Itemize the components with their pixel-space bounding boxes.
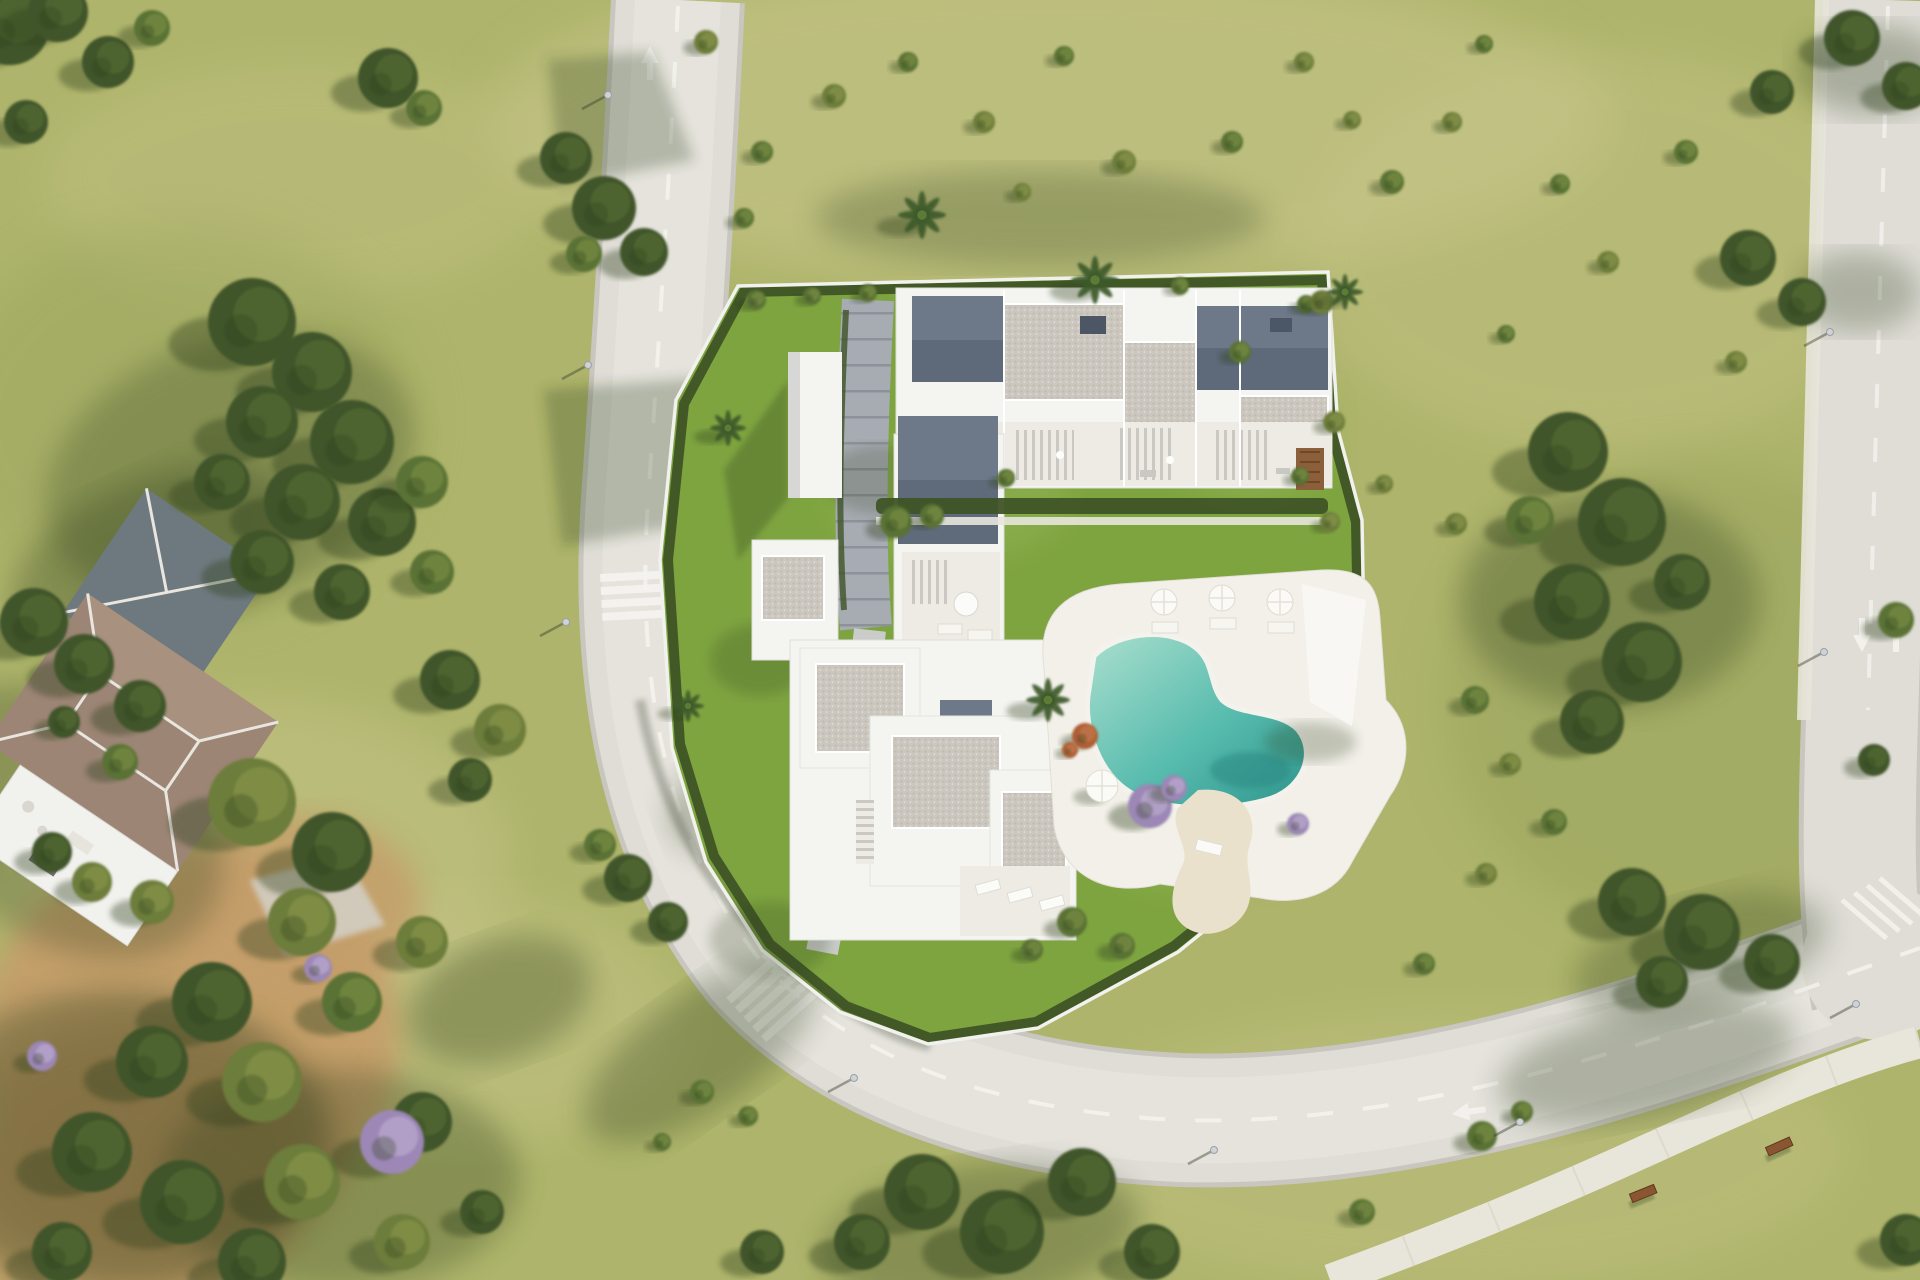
street-lamp [605, 92, 612, 99]
tree-inner-shade [1864, 757, 1876, 769]
tree-inner-shade [287, 365, 317, 395]
tree-inner-shade [39, 848, 54, 863]
tree-inner-shade [1384, 180, 1393, 189]
tree-inner-shade [1065, 749, 1071, 755]
tree-inner-shade [187, 995, 217, 1025]
tree-inner-shade [1546, 820, 1556, 830]
tree-inner-shade [1515, 516, 1533, 534]
skylight [1080, 316, 1106, 334]
tree-inner-shade [1466, 697, 1477, 708]
pool-deep-end [1210, 752, 1290, 788]
tree-inner-shade [1136, 802, 1153, 819]
tree-inner-shade [1758, 88, 1775, 105]
tree-inner-shade [844, 1237, 865, 1258]
tree-inner-shade [33, 1053, 44, 1064]
tree-inner-shade [1449, 522, 1457, 530]
tree-inner-shade [573, 251, 587, 265]
tree-inner-shade [1061, 1176, 1087, 1202]
tree-inner-shade [1298, 60, 1306, 68]
tree-inner-shade [1548, 595, 1577, 624]
tree-inner-shade [886, 519, 898, 531]
tree-inner-shade [1611, 896, 1637, 922]
tree-inner-shade [806, 294, 813, 301]
tree-inner-shade [39, 7, 62, 30]
tree-inner-shade [1446, 120, 1454, 128]
tree-inner-shade [750, 298, 758, 306]
tree-inner-shade [694, 1090, 703, 1099]
palm-crown [917, 210, 927, 220]
street-lamp [1827, 329, 1834, 336]
tree-inner-shade [977, 120, 985, 128]
garden-walk [876, 517, 1328, 525]
sun-lounger [938, 624, 962, 634]
tree-inner-shade [281, 916, 307, 942]
tree-inner-shade [418, 568, 435, 585]
tree-inner-shade [1166, 786, 1176, 796]
tree-inner-shade [1058, 54, 1066, 62]
tree-inner-shade [326, 434, 358, 466]
tree-inner-shade [224, 794, 257, 827]
tree-inner-shade [278, 495, 307, 524]
tree-inner-shade [755, 150, 763, 158]
tree-inner-shade [902, 60, 910, 68]
palm-crown [1044, 696, 1053, 705]
right-road [1860, 0, 1884, 1000]
scene-svg [0, 0, 1920, 1280]
tree-inner-shade [1678, 925, 1707, 954]
tree-inner-shade [242, 556, 266, 580]
tree-inner-shade [372, 1136, 396, 1160]
pool-parasols [1151, 585, 1294, 633]
tree-inner-shade [237, 1075, 267, 1105]
palm-crown [724, 424, 731, 431]
tree-inner-shade [826, 94, 835, 103]
tree-inner-shade [1225, 140, 1233, 148]
tree-inner-shade [1515, 1110, 1523, 1118]
tree-inner-shade [278, 1175, 307, 1204]
gravel-roof [892, 736, 1000, 828]
pergola-slats [1214, 430, 1270, 480]
tree-inner-shade [1077, 734, 1087, 744]
tree-inner-shade [79, 878, 94, 893]
tree-inner-shade [141, 25, 155, 39]
tree-inner-shade [124, 701, 144, 721]
tree-inner-shade [309, 965, 320, 976]
tree-inner-shade [1554, 182, 1562, 190]
sun-lounger [968, 630, 992, 640]
gravel-roof [762, 556, 824, 620]
skylight [1270, 318, 1292, 332]
tree-inner-shade [129, 1056, 156, 1083]
tree-inner-shade [1473, 1133, 1484, 1144]
slate-roof-shade [912, 340, 1004, 382]
palm-crown [685, 703, 691, 709]
sun-lounger [1268, 622, 1294, 633]
tree-inner-shade [1025, 948, 1033, 956]
canopy-shadow [1264, 722, 1356, 762]
tree-inner-shade [484, 725, 504, 745]
sand-play-area [1172, 790, 1252, 934]
tree-inner-shade [1500, 332, 1507, 339]
tree-inner-shade [1134, 1247, 1155, 1268]
tree-inner-shade [1594, 514, 1627, 547]
roof-furniture [1166, 456, 1174, 464]
gravel-roof [1124, 342, 1196, 426]
tree-inner-shade [1233, 350, 1241, 358]
tree-inner-shade [204, 477, 225, 498]
tree-inner-shade [67, 1145, 97, 1175]
slate-roof-shade [1196, 348, 1328, 390]
tree-inner-shade [1063, 919, 1074, 930]
tree-inner-shade [1327, 420, 1335, 428]
tree-inner-shade [456, 776, 473, 793]
tree-inner-shade [1572, 716, 1596, 740]
tree-inner-shade [65, 659, 88, 682]
tree-inner-shade [1543, 445, 1573, 475]
tree-inner-shade [742, 1114, 750, 1122]
tree-inner-shade [413, 105, 427, 119]
pergola-slats [1012, 430, 1074, 480]
tree-inner-shade [1503, 762, 1511, 770]
tree-inner-shade [431, 675, 454, 698]
tree-inner-shade [1891, 82, 1909, 100]
tree-inner-shade [862, 291, 869, 298]
tree-inner-shade [613, 874, 631, 892]
tree-inner-shade [1354, 1210, 1364, 1220]
tree-inner-shade [1678, 150, 1687, 159]
tree-inner-shade [748, 1248, 765, 1265]
tree-inner-shade [629, 248, 647, 266]
tree-inner-shade [1664, 577, 1685, 598]
tree-inner-shade [224, 314, 257, 347]
tree-inner-shade [1885, 617, 1899, 631]
tree-inner-shade [361, 516, 387, 542]
aerial-render-scene: Aerial 3D render of a modern residential… [0, 0, 1920, 1280]
street-lamp [1211, 1147, 1218, 1154]
roof-furniture [1276, 468, 1290, 474]
tree-inner-shade [406, 477, 426, 497]
tree-inner-shade [1378, 482, 1385, 489]
palm-crown [1090, 275, 1100, 285]
tree-inner-shade [1754, 957, 1775, 978]
tree-inner-shade [1346, 118, 1353, 125]
tree-inner-shade [1834, 33, 1855, 54]
tree-inner-shade [54, 719, 66, 731]
tree-inner-shade [239, 416, 266, 443]
tree-inner-shade [924, 514, 933, 523]
street-lamp [1517, 1119, 1524, 1126]
palm-crown [1341, 288, 1348, 295]
cast-shadow [815, 170, 1265, 266]
tree-inner-shade [324, 587, 345, 608]
tree-inner-shade [584, 202, 608, 226]
tree-inner-shade [655, 918, 670, 933]
tree-inner-shade [156, 1194, 188, 1226]
tree-inner-shade [738, 216, 746, 224]
stairs [856, 800, 874, 864]
tree-inner-shade [1787, 298, 1805, 316]
tree-inner-shade [333, 997, 356, 1020]
tree-inner-shade [12, 118, 29, 135]
sun-lounger [1210, 618, 1236, 629]
tree-inner-shade [698, 40, 707, 49]
tree-inner-shade [1174, 284, 1181, 291]
roof-furniture [1140, 470, 1156, 477]
tree-inner-shade [550, 153, 570, 173]
tree-inner-shade [1617, 655, 1647, 685]
tree-inner-shade [1114, 944, 1124, 954]
tree-inner-shade [1291, 822, 1299, 830]
tree-inner-shade [13, 616, 39, 642]
tree-inner-shade [43, 1247, 66, 1270]
tree-inner-shade [590, 842, 602, 854]
tree-inner-shade [369, 73, 392, 96]
street-lamp [585, 362, 592, 369]
parasol [954, 592, 978, 616]
tree-inner-shade [109, 759, 123, 773]
tree-inner-shade [1324, 520, 1332, 528]
tree-inner-shade [1646, 977, 1666, 997]
tree-inner-shade [92, 57, 112, 77]
street-lamp [563, 619, 570, 626]
tower-shaded-side [788, 352, 800, 498]
tree-inner-shade [1000, 476, 1007, 483]
tree-inner-shade [1417, 962, 1425, 970]
tree-inner-shade [1294, 474, 1301, 481]
tree-inner-shade [1730, 253, 1751, 274]
tree-inner-shade [468, 1208, 485, 1225]
street-lamp [851, 1075, 858, 1082]
tree-inner-shade [1601, 260, 1609, 268]
tree-inner-shade [384, 1237, 405, 1258]
street-lamp [1821, 649, 1828, 656]
pergola-slats [910, 560, 950, 604]
roof-furniture [1056, 451, 1064, 459]
tree-inner-shade [898, 1185, 927, 1214]
tree-inner-shade [307, 845, 337, 875]
tree-inner-shade [1890, 1235, 1910, 1255]
tree-inner-shade [1478, 42, 1485, 49]
sun-lounger [1152, 622, 1178, 633]
garden-hedge-band [876, 498, 1328, 514]
tree-inner-shade [976, 1224, 1008, 1256]
tree-inner-shade [406, 937, 426, 957]
tree-inner-shade [1729, 360, 1737, 368]
street-lamp [1853, 1001, 1860, 1008]
tree-inner-shade [138, 898, 155, 915]
tree-inner-shade [1116, 160, 1125, 169]
tree-inner-shade [1479, 872, 1487, 880]
tree-inner-shade [1016, 190, 1023, 197]
tree-inner-shade [656, 1140, 663, 1147]
